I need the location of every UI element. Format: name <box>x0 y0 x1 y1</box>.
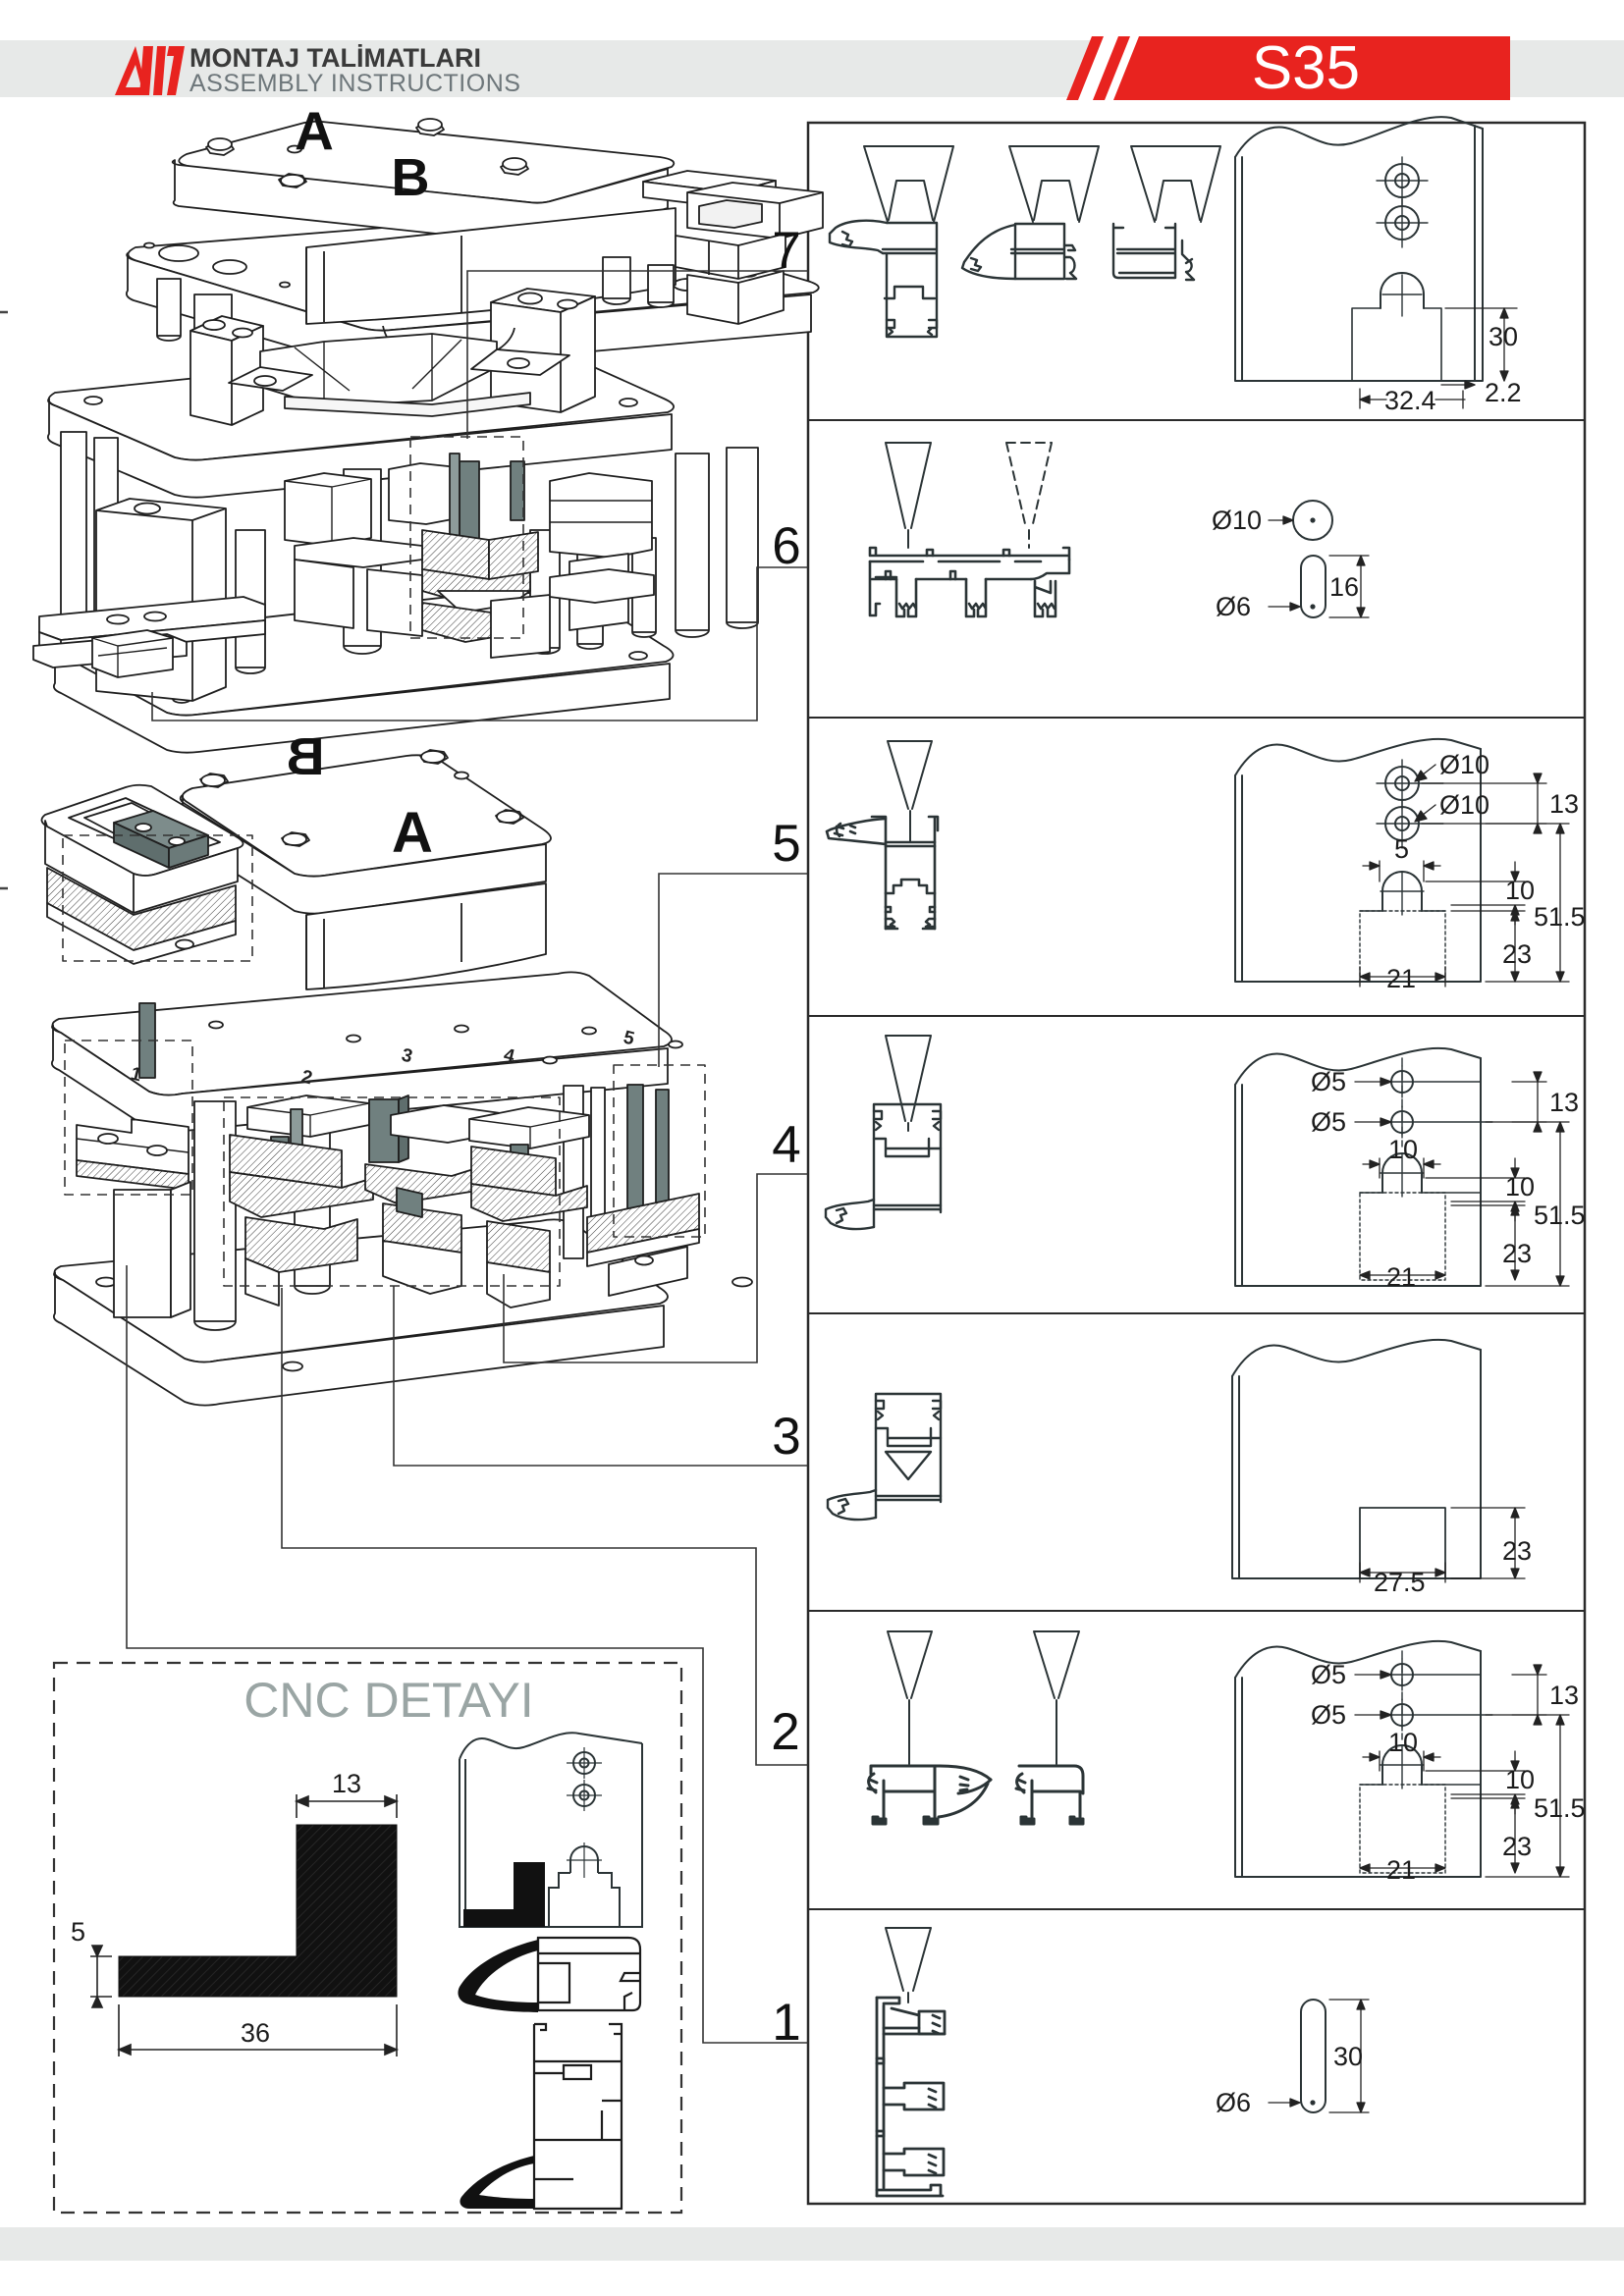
svg-text:10: 10 <box>1505 1765 1535 1794</box>
svg-text:Ø6: Ø6 <box>1216 2088 1251 2117</box>
svg-text:51.5: 51.5 <box>1534 1201 1586 1230</box>
svg-text:13: 13 <box>332 1769 361 1798</box>
svg-text:51.5: 51.5 <box>1534 902 1586 932</box>
svg-text:B: B <box>287 727 325 786</box>
svg-text:23: 23 <box>1502 939 1532 969</box>
svg-text:23: 23 <box>1502 1239 1532 1268</box>
svg-text:13: 13 <box>1549 789 1579 819</box>
svg-text:13: 13 <box>1549 1681 1579 1710</box>
svg-text:21: 21 <box>1386 1262 1416 1292</box>
svg-text:10: 10 <box>1505 1172 1535 1201</box>
svg-text:32.4: 32.4 <box>1384 386 1436 415</box>
svg-text:36: 36 <box>241 2018 270 2048</box>
svg-text:23: 23 <box>1502 1536 1532 1566</box>
svg-text:21: 21 <box>1386 964 1416 993</box>
svg-text:Ø10: Ø10 <box>1439 790 1489 820</box>
svg-text:Ø5: Ø5 <box>1311 1700 1346 1730</box>
svg-text:6: 6 <box>772 517 800 575</box>
svg-text:5: 5 <box>772 815 800 873</box>
svg-text:16: 16 <box>1329 572 1359 602</box>
svg-text:2: 2 <box>771 1703 799 1761</box>
svg-text:Ø10: Ø10 <box>1212 506 1262 535</box>
svg-text:21: 21 <box>1386 1855 1416 1885</box>
svg-text:A: A <box>295 100 334 161</box>
svg-text:27.5: 27.5 <box>1374 1568 1426 1597</box>
svg-text:30: 30 <box>1489 322 1518 351</box>
svg-text:MONTAJ TALİMATLARI: MONTAJ TALİMATLARI <box>189 43 481 73</box>
svg-text:CNC DETAYI: CNC DETAYI <box>244 1673 533 1728</box>
svg-text:Ø5: Ø5 <box>1311 1660 1346 1689</box>
svg-text:5: 5 <box>1394 834 1409 864</box>
svg-text:Ø5: Ø5 <box>1311 1107 1346 1137</box>
svg-text:B: B <box>392 148 430 207</box>
svg-text:S35: S35 <box>1252 34 1360 102</box>
svg-text:Ø6: Ø6 <box>1216 592 1251 621</box>
svg-text:3: 3 <box>772 1408 800 1466</box>
svg-text:ASSEMBLY INSTRUCTIONS: ASSEMBLY INSTRUCTIONS <box>189 70 520 97</box>
svg-text:5: 5 <box>71 1917 85 1947</box>
svg-text:23: 23 <box>1502 1832 1532 1861</box>
svg-text:10: 10 <box>1388 1728 1418 1757</box>
svg-text:Ø5: Ø5 <box>1311 1067 1346 1096</box>
svg-text:13: 13 <box>1549 1088 1579 1117</box>
svg-text:Ø10: Ø10 <box>1439 750 1489 779</box>
svg-text:A: A <box>392 801 433 865</box>
svg-text:2.2: 2.2 <box>1485 378 1522 407</box>
svg-text:10: 10 <box>1505 876 1535 905</box>
svg-text:30: 30 <box>1333 2042 1363 2071</box>
svg-text:4: 4 <box>772 1116 800 1174</box>
svg-text:51.5: 51.5 <box>1534 1793 1586 1823</box>
svg-text:10: 10 <box>1388 1135 1418 1164</box>
